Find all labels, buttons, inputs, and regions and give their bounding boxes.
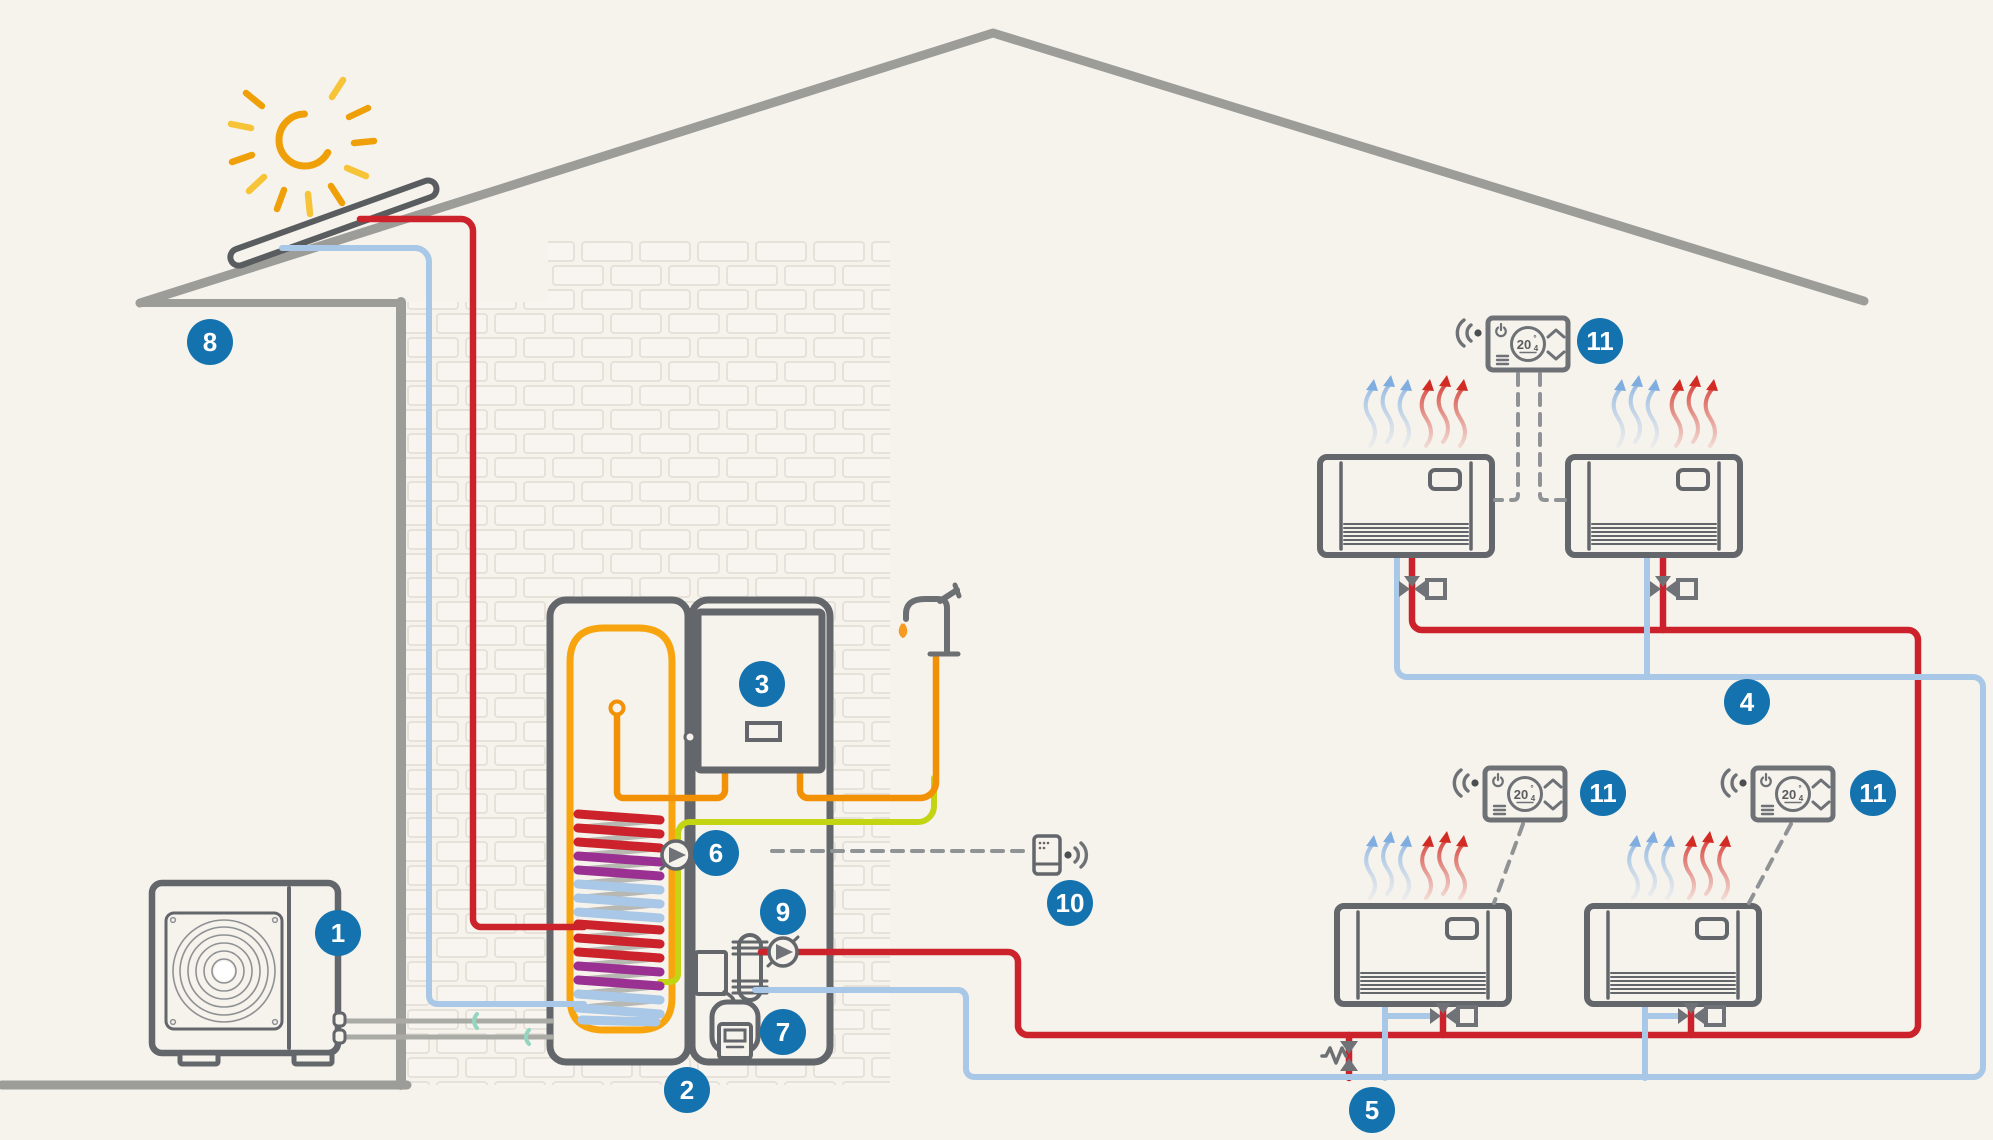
roof (140, 33, 1864, 303)
svg-text:10: 10 (1056, 888, 1085, 918)
svg-text:1: 1 (331, 918, 345, 948)
svg-text:4: 4 (1740, 687, 1755, 717)
faucet-icon (900, 585, 959, 654)
badge-4: 4 (1724, 679, 1770, 725)
svg-text:9: 9 (776, 897, 790, 927)
svg-text:6: 6 (709, 838, 723, 868)
wifi-signal-icon (1722, 770, 1746, 796)
svg-text:20: 20 (1514, 787, 1528, 802)
heating-pump-icon (768, 937, 798, 966)
thermostat-top: 20 ° 4 (1457, 318, 1568, 370)
menu-icon (1494, 806, 1505, 814)
pipe-port (685, 732, 695, 742)
svg-text:11: 11 (1859, 778, 1887, 808)
zone-valve-top-left (1399, 576, 1445, 598)
circulation-pump-icon (661, 840, 691, 869)
hvac-system-diagram: 20 ° 4 20 ° 4 (0, 0, 1993, 1140)
svg-text:°: ° (1533, 334, 1536, 343)
wifi-signal-icon (1064, 843, 1086, 867)
svg-text:8: 8 (203, 327, 217, 357)
badge-1: 1 (315, 910, 361, 956)
wifi-signal-icon (1454, 770, 1478, 796)
svg-text:°: ° (1798, 784, 1801, 793)
svg-text:2: 2 (680, 1075, 694, 1105)
badge-11-bottom-right: 11 (1850, 770, 1896, 816)
badge-7: 7 (760, 1009, 806, 1055)
badge-9: 9 (760, 889, 806, 935)
fan-coil-unit-bottom-left (1337, 906, 1509, 1004)
badge-11-bottom-left: 11 (1580, 770, 1626, 816)
fan-coil-units (1320, 457, 1759, 1004)
cool-air-arrows (1366, 384, 1409, 446)
menu-icon (1762, 806, 1773, 814)
thermostat-bottom-left: 20 ° 4 (1454, 768, 1565, 820)
sun-icon (231, 80, 374, 214)
svg-text:5: 5 (1365, 1095, 1379, 1125)
diagram-canvas: 20 ° 4 20 ° 4 (0, 0, 1993, 1140)
svg-text:7: 7 (776, 1017, 790, 1047)
svg-text:3: 3 (755, 669, 769, 699)
thermostat-links (1494, 374, 1791, 903)
wifi-signal-icon (1457, 320, 1481, 346)
boiler-display (747, 723, 780, 740)
svg-text:11: 11 (1586, 326, 1614, 356)
svg-text:4: 4 (1799, 794, 1804, 803)
badge-5: 5 (1349, 1087, 1395, 1133)
svg-text:20: 20 (1517, 337, 1531, 352)
thermostat-bottom-right: 20 ° 4 (1722, 768, 1833, 820)
bypass-valve-icon (1322, 1041, 1358, 1071)
svg-text:4: 4 (1531, 794, 1536, 803)
fan-coil-unit-bottom-right (1587, 906, 1759, 1004)
badge-10: 10 (1047, 880, 1093, 926)
zone-valve-top-right (1650, 576, 1696, 598)
badge-11-top: 11 (1577, 318, 1623, 364)
fan-coil-unit-top-left (1320, 457, 1492, 555)
warm-air-arrows (1422, 384, 1465, 446)
svg-text:20: 20 (1782, 787, 1796, 802)
water-drop-icon (900, 624, 906, 637)
wireless-gateway-icon (1034, 836, 1086, 874)
badge-8: 8 (187, 319, 233, 365)
badge-2: 2 (664, 1067, 710, 1113)
outdoor-heat-pump-unit (152, 883, 345, 1064)
svg-text:°: ° (1530, 784, 1533, 793)
expansion-vessel-meter (712, 1002, 758, 1058)
svg-text:4: 4 (1534, 344, 1539, 353)
badge-6: 6 (693, 830, 739, 876)
badge-3: 3 (739, 661, 785, 707)
fan-coil-unit-top-right (1568, 457, 1740, 555)
svg-text:11: 11 (1589, 778, 1617, 808)
